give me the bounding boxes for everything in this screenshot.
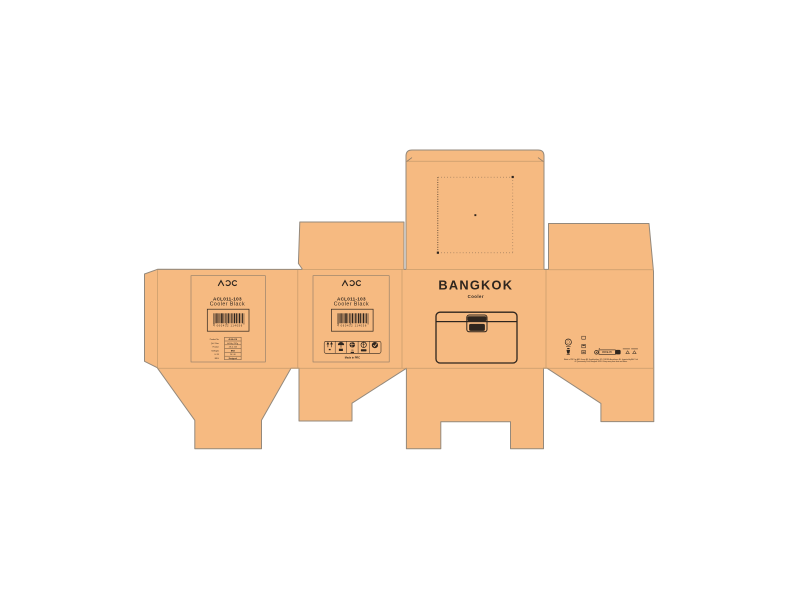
svg-text:Product No: Product No bbox=[210, 338, 219, 341]
svg-text:Cooler: Cooler bbox=[468, 294, 484, 299]
svg-text:A-Poly / 207g: A-Poly / 207g bbox=[227, 342, 238, 345]
svg-text:ACL011-103: ACL011-103 bbox=[213, 296, 242, 301]
svg-text:Cooler Black: Cooler Black bbox=[334, 302, 369, 308]
svg-text:23L & 103: 23L & 103 bbox=[229, 347, 237, 349]
svg-text:G / W: G / W bbox=[214, 354, 219, 356]
svg-text:BKB: BKB bbox=[231, 350, 236, 352]
svg-text:Designed: Designed bbox=[229, 358, 237, 360]
svg-text:Product: Product bbox=[213, 346, 220, 349]
svg-text:N.Weight: N.Weight bbox=[211, 349, 219, 352]
svg-text:20 / 08: 20 / 08 bbox=[230, 354, 236, 356]
svg-text:ACL011-103: ACL011-103 bbox=[337, 296, 366, 301]
svg-text:Cooler Black: Cooler Black bbox=[210, 302, 245, 308]
svg-text:4 060432 114056: 4 060432 114056 bbox=[337, 324, 367, 328]
svg-text:BANGKOK: BANGKOK bbox=[438, 278, 513, 293]
svg-text:Qté / Size: Qté / Size bbox=[211, 342, 219, 345]
svg-text:MFG: MFG bbox=[215, 358, 220, 360]
svg-text:4 060432 114056: 4 060432 114056 bbox=[213, 324, 243, 328]
svg-text:08/RE-PK: 08/RE-PK bbox=[602, 352, 613, 354]
svg-text:Made in PRC: Made in PRC bbox=[345, 357, 360, 360]
svg-text:42 Queensway Park, Bangkok 101: 42 Queensway Park, Bangkok 10110. Keep a… bbox=[575, 360, 628, 363]
svg-text:45.08.4.18: 45.08.4.18 bbox=[229, 338, 238, 341]
